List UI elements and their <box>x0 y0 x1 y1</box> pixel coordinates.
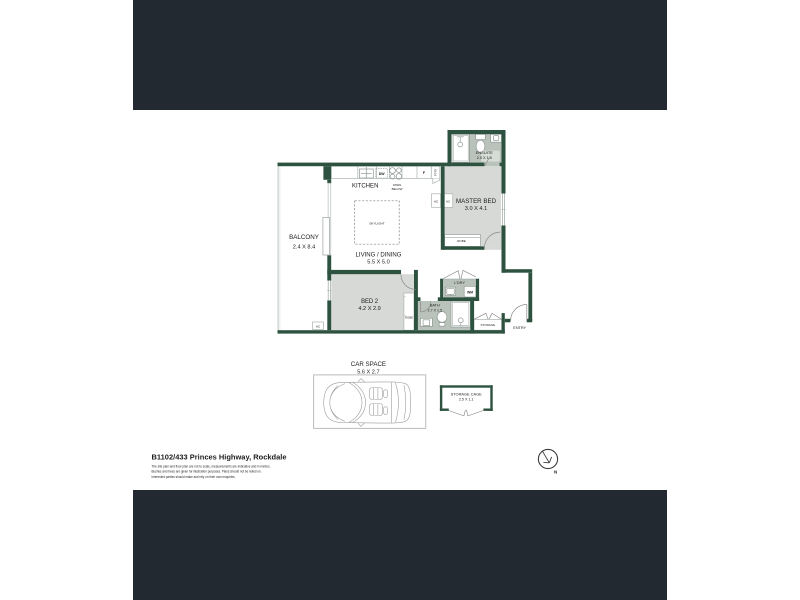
svg-text:BELOW: BELOW <box>392 187 403 191</box>
svg-text:MASTER BED: MASTER BED <box>456 198 496 205</box>
svg-text:STORAGE CAGE: STORAGE CAGE <box>451 392 482 397</box>
svg-text:BED 2: BED 2 <box>361 298 378 305</box>
svg-text:2.0 X 1.5: 2.0 X 1.5 <box>477 156 492 160</box>
svg-text:ROBE: ROBE <box>405 316 413 320</box>
svg-text:2.7 X 1.5: 2.7 X 1.5 <box>428 309 442 313</box>
svg-text:5.6 X 2.7: 5.6 X 2.7 <box>357 369 379 375</box>
svg-text:KITCHEN: KITCHEN <box>352 183 379 190</box>
svg-text:BATH: BATH <box>430 303 440 307</box>
svg-text:4.2 X 2.9: 4.2 X 2.9 <box>358 306 380 312</box>
svg-text:SKYLIGHT: SKYLIGHT <box>369 221 384 225</box>
svg-text:Bushes and trees are given for: Bushes and trees are given for illustrat… <box>152 470 262 474</box>
svg-text:AC: AC <box>434 199 439 203</box>
svg-text:ENSUITE: ENSUITE <box>476 150 494 155</box>
svg-text:LIVING / DINING: LIVING / DINING <box>356 252 402 259</box>
svg-text:ROBE: ROBE <box>457 239 466 243</box>
svg-text:Interested parties should make: Interested parties should make and rely … <box>152 475 236 479</box>
svg-text:2.5 X 1.1: 2.5 X 1.1 <box>459 397 474 401</box>
svg-text:CAR SPACE: CAR SPACE <box>351 361 386 368</box>
svg-text:N: N <box>554 470 557 475</box>
svg-text:WM: WM <box>467 291 473 295</box>
svg-text:AC: AC <box>316 324 321 328</box>
svg-text:STORAGE: STORAGE <box>480 323 495 327</box>
svg-text:PTRY: PTRY <box>434 168 438 176</box>
svg-text:AC: AC <box>446 199 451 203</box>
svg-text:2.4 X 8.4: 2.4 X 8.4 <box>293 245 315 251</box>
svg-text:5.5 X 5.0: 5.5 X 5.0 <box>367 260 389 266</box>
svg-text:B1102/433 Princes Highway, Roc: B1102/433 Princes Highway, Rockdale <box>152 453 287 462</box>
svg-text:3.0 X 4.1: 3.0 X 4.1 <box>465 206 487 212</box>
svg-text:ENTRY: ENTRY <box>513 326 526 330</box>
svg-text:The site plan and floor plan a: The site plan and floor plan are not to … <box>152 464 271 468</box>
svg-text:DW: DW <box>379 172 386 176</box>
svg-text:BALCONY: BALCONY <box>289 234 319 241</box>
svg-text:L'DRY: L'DRY <box>454 281 465 285</box>
